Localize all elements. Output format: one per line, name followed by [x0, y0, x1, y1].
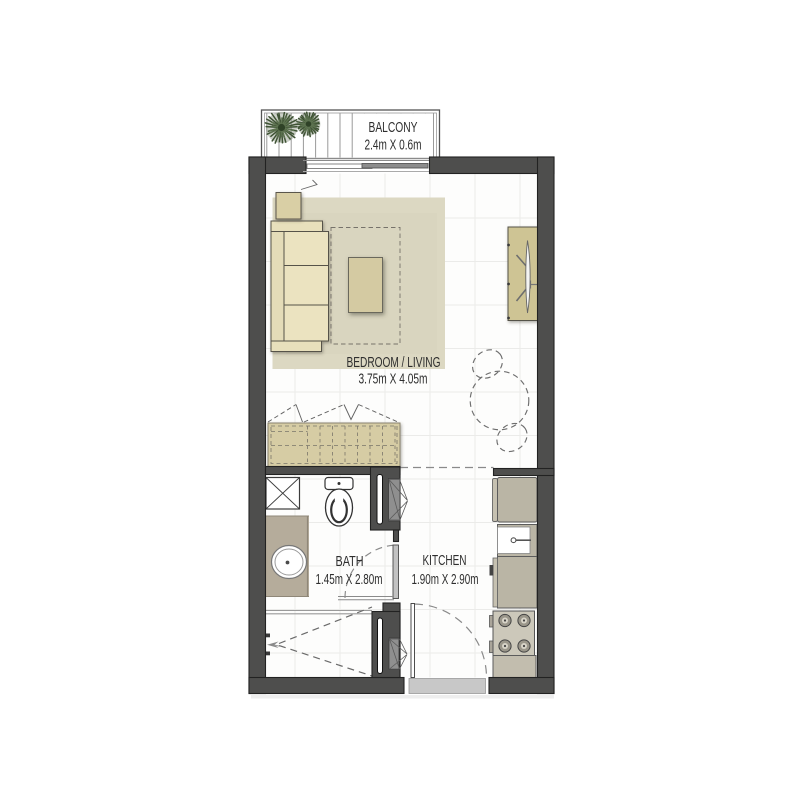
svg-text:BEDROOM / LIVING: BEDROOM / LIVING: [347, 355, 441, 371]
svg-text:BATH: BATH: [336, 554, 364, 570]
svg-text:BALCONY: BALCONY: [369, 120, 418, 136]
svg-text:1.90m X 2.90m: 1.90m X 2.90m: [412, 572, 479, 588]
svg-text:1.45m X 2.80m: 1.45m X 2.80m: [316, 572, 383, 588]
svg-text:KITCHEN: KITCHEN: [423, 553, 467, 569]
svg-text:3.75m X 4.05m: 3.75m X 4.05m: [359, 372, 428, 388]
svg-text:2.4m X 0.6m: 2.4m X 0.6m: [365, 138, 422, 154]
